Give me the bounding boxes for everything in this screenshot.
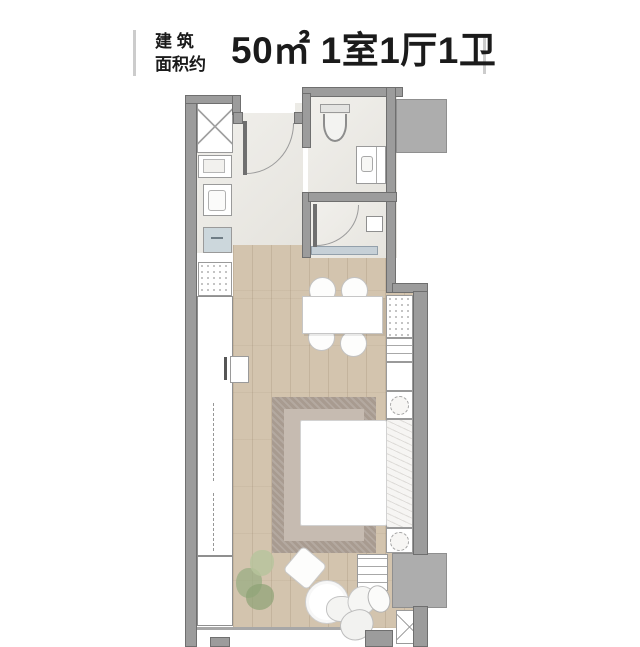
bed xyxy=(300,420,387,526)
shower-door-leaf xyxy=(313,204,317,247)
potted-plant xyxy=(236,550,280,614)
lamp-icon xyxy=(390,532,409,551)
toilet-tank xyxy=(320,104,350,113)
plant-leaf xyxy=(246,584,274,610)
storage-cabinet xyxy=(386,295,413,338)
dining-chair xyxy=(340,330,367,357)
entry-door-jamb-left xyxy=(233,112,243,124)
hanger-rail-upper xyxy=(213,403,214,481)
faucet-icon xyxy=(211,237,223,239)
tv-screen-icon xyxy=(224,357,227,380)
glass-screen xyxy=(311,246,378,255)
cooktop-unit xyxy=(198,155,232,178)
title-left-accent-bar xyxy=(133,30,136,76)
wall-top-kitchen xyxy=(185,95,235,104)
wall-left xyxy=(185,95,197,647)
wall-bathroom-divider xyxy=(308,192,397,202)
utility-shaft-bottom xyxy=(392,553,447,608)
area-label-line2: 面积约 xyxy=(155,53,225,76)
fridge-cabinet xyxy=(197,100,233,153)
page-title: 50㎡1室1厅1卫 xyxy=(231,26,496,76)
hanger-rail-lower xyxy=(213,493,214,551)
bed-headboard-pillows xyxy=(386,419,413,528)
shelf-unit xyxy=(386,338,413,362)
area-label-line1: 建 筑 xyxy=(155,30,225,53)
wall-right-upper xyxy=(386,87,396,293)
wall-bathroom-left-upper xyxy=(302,93,311,148)
kitchen-lower-cabinet xyxy=(198,262,232,296)
lamp-icon xyxy=(390,396,409,415)
counter-basin xyxy=(208,190,226,211)
wall-bottom-mid xyxy=(365,630,393,647)
nightstand-bottom xyxy=(386,528,413,553)
plant-leaf xyxy=(250,550,274,576)
vanity-sink xyxy=(356,146,386,184)
kitchen-sink xyxy=(203,227,232,253)
side-console-lower xyxy=(197,556,233,626)
side-console-cabinet xyxy=(197,296,233,556)
kitchen-counter xyxy=(203,184,232,216)
entry-recess xyxy=(233,85,295,113)
floorplan-page: 建 筑 面积约 50㎡1室1厅1卫 xyxy=(0,0,640,647)
wall-right-bottom xyxy=(413,606,428,647)
vanity-divider xyxy=(376,147,377,183)
area-label: 建 筑 面积约 xyxy=(155,30,225,76)
utility-shaft-top xyxy=(396,99,447,153)
wall-right-lower xyxy=(413,291,428,555)
entry-door-leaf xyxy=(243,121,247,175)
wall-bottom-left-block xyxy=(210,637,230,647)
cabinet-blank xyxy=(386,362,413,391)
basin-icon xyxy=(361,156,373,172)
tv-unit xyxy=(230,356,249,383)
cooktop-pan xyxy=(203,159,225,173)
shower-fixture xyxy=(366,216,383,232)
area-value: 50㎡ xyxy=(231,30,311,71)
nightstand-top xyxy=(386,391,413,419)
layout-value: 1室1厅1卫 xyxy=(321,30,497,71)
dining-table xyxy=(302,296,383,334)
